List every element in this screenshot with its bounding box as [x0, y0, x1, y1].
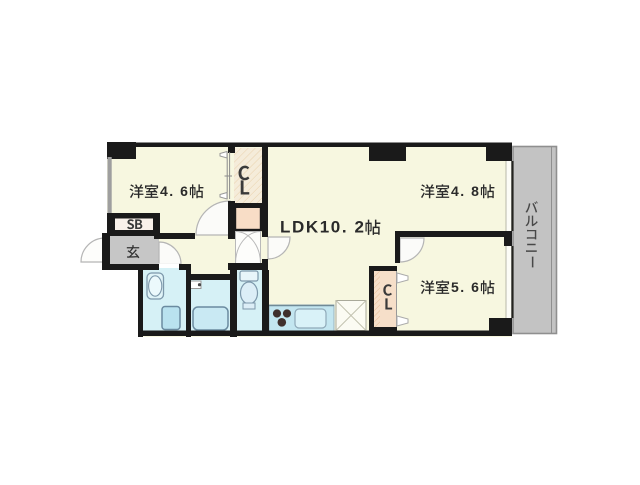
svg-text:4. 8: 4. 8 — [451, 183, 480, 199]
svg-text:4. 6: 4. 6 — [160, 183, 189, 199]
svg-text:LDK10. 2: LDK10. 2 — [280, 218, 366, 237]
svg-text:5. 6: 5. 6 — [451, 279, 480, 295]
